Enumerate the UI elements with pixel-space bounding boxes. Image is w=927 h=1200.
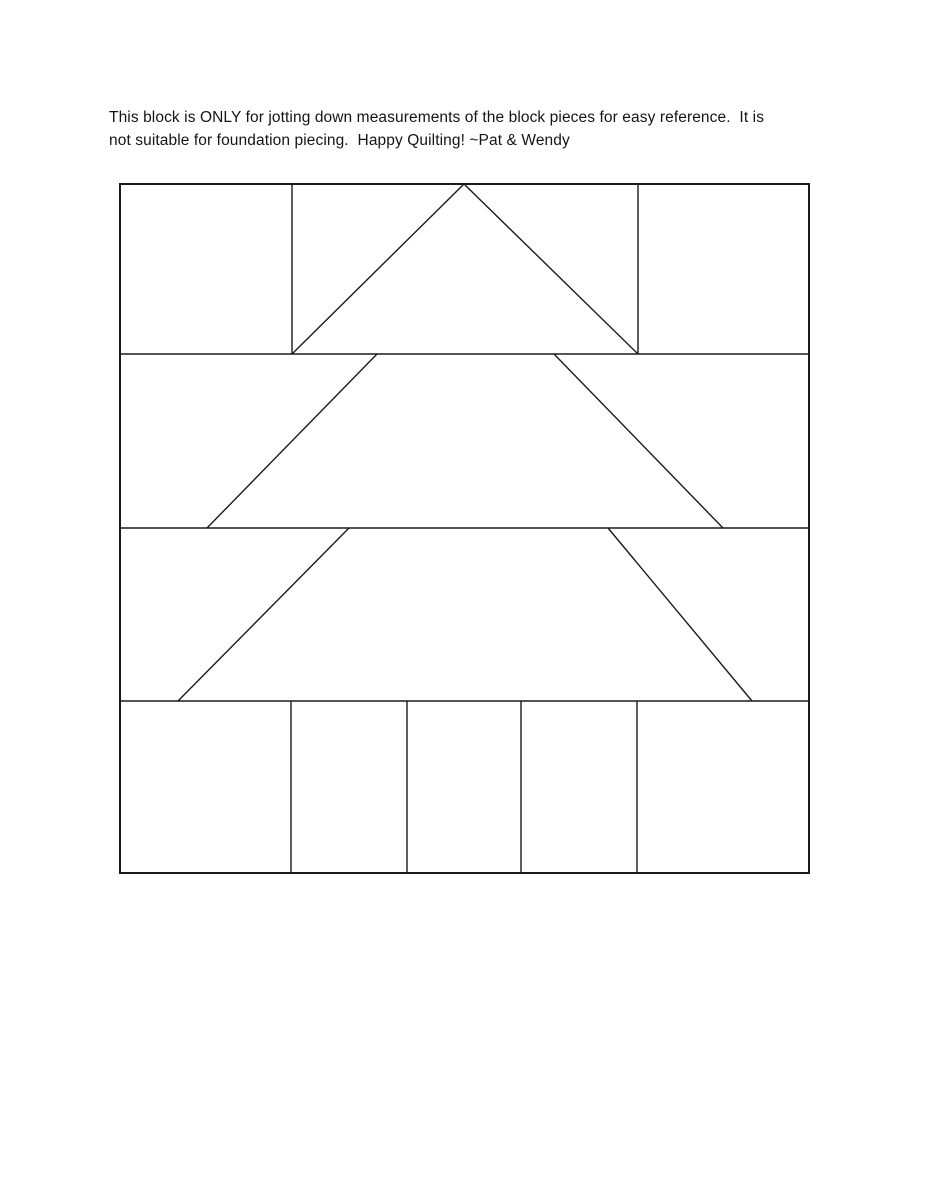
note-line-1: This block is ONLY for jotting down meas… — [109, 106, 829, 129]
note-line-2: not suitable for foundation piecing. Hap… — [109, 129, 829, 152]
page: { "note": { "line1": "This block is ONLY… — [0, 0, 927, 1200]
instruction-note: This block is ONLY for jotting down meas… — [109, 106, 829, 152]
quilt-block-diagram — [119, 183, 810, 874]
